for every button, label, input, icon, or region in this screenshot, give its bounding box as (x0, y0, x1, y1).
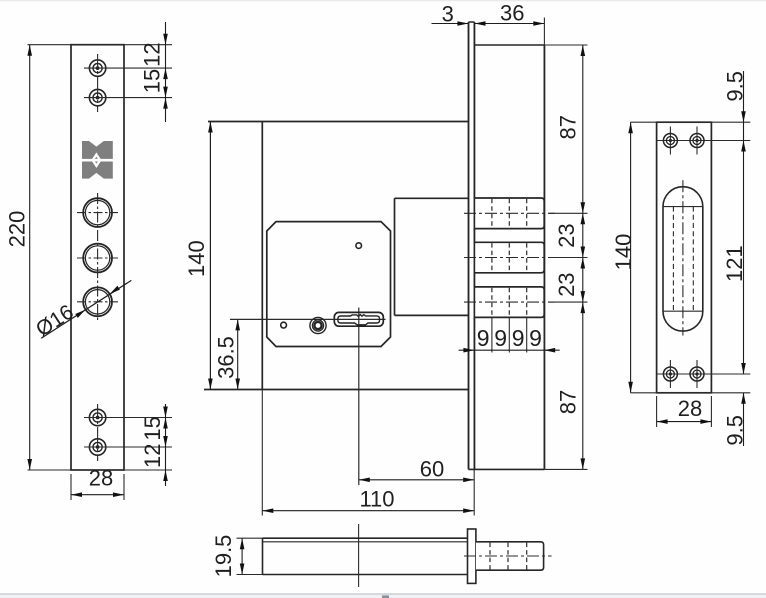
svg-text:9.5: 9.5 (722, 71, 747, 102)
svg-text:121: 121 (722, 245, 747, 282)
svg-text:36: 36 (500, 1, 524, 26)
svg-text:9.5: 9.5 (722, 415, 747, 446)
svg-text:28: 28 (678, 396, 702, 421)
svg-text:9: 9 (529, 325, 542, 351)
svg-text:15: 15 (140, 416, 165, 440)
svg-text:140: 140 (184, 240, 209, 277)
svg-text:140: 140 (611, 234, 636, 271)
svg-text:23: 23 (554, 223, 579, 247)
svg-text:9: 9 (494, 325, 507, 351)
svg-text:220: 220 (5, 211, 30, 248)
svg-text:36.5: 36.5 (214, 336, 239, 379)
svg-text:19.5: 19.5 (211, 535, 236, 578)
svg-text:9: 9 (477, 325, 490, 351)
svg-text:28: 28 (89, 466, 113, 491)
svg-text:110: 110 (359, 487, 394, 512)
svg-text:60: 60 (420, 457, 444, 482)
svg-text:3: 3 (442, 2, 454, 27)
svg-text:87: 87 (555, 390, 580, 414)
svg-text:87: 87 (555, 115, 580, 139)
svg-text:23: 23 (554, 272, 579, 296)
svg-text:9: 9 (512, 325, 525, 351)
svg-text:15: 15 (140, 69, 165, 93)
svg-text:12: 12 (140, 42, 165, 66)
svg-text:12: 12 (140, 444, 165, 468)
